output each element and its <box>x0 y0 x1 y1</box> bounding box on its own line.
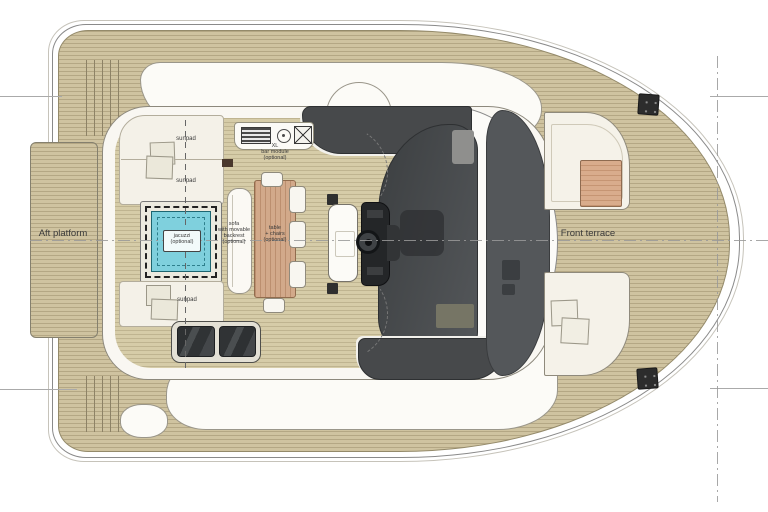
table-label: table + chairs (optional) <box>255 225 295 243</box>
front-terrace-label: Front terrace <box>553 228 623 240</box>
deck-hatch-bump-bottom <box>120 404 168 438</box>
sink-drain-dot <box>282 134 285 137</box>
stern-step-line <box>110 376 111 432</box>
windshield-detail <box>502 260 520 280</box>
aft-platform-label: Aft platform <box>37 228 89 240</box>
terrace-side-table <box>560 317 589 344</box>
cleat-icon <box>636 367 658 389</box>
chair <box>289 261 306 288</box>
cleat-icon <box>637 93 659 115</box>
skylight-glass <box>219 326 256 357</box>
station-line <box>0 96 62 97</box>
windshield-detail <box>502 284 515 295</box>
station-line <box>710 96 768 97</box>
steering-wheel-icon <box>356 230 380 254</box>
helm-bench-split <box>335 231 355 257</box>
stern-step-line <box>102 60 103 136</box>
bow-station-dashline <box>717 56 718 502</box>
console-detail <box>367 210 383 218</box>
sink-icon <box>277 129 291 143</box>
yacht-deck-plan: Aft platform Front terrace sunpad sunpad… <box>0 0 768 512</box>
centerline <box>30 240 768 241</box>
console-detail <box>367 267 383 275</box>
stern-step-line <box>118 376 119 432</box>
station-line <box>710 388 768 389</box>
sofa-label: sofa with movable backrest (optional) <box>217 221 251 246</box>
saloon-furniture-through-glass <box>400 210 444 256</box>
bar-module-label: XL bar module (optional) <box>244 143 306 161</box>
stern-step-line <box>94 60 95 136</box>
stern-step-line <box>94 376 95 432</box>
hardtop-glass-bottom-arm <box>358 338 506 380</box>
saloon-table-through-glass <box>436 304 474 328</box>
skylight-glass <box>177 326 215 357</box>
deck-fitting <box>222 159 233 167</box>
terrace-table <box>580 160 622 207</box>
chair <box>261 172 283 187</box>
stern-step-line <box>102 376 103 432</box>
grille-icon <box>241 127 271 144</box>
stern-step-line <box>86 60 87 136</box>
sunpad-label: sunpad <box>164 297 210 304</box>
sunpad-label: sunpad <box>163 136 209 143</box>
chair <box>263 298 285 313</box>
stern-step-line <box>86 376 87 432</box>
sunpad-label: sunpad <box>163 178 209 185</box>
helm-console-wing <box>387 225 400 261</box>
sunpad-side-table <box>146 156 174 180</box>
jacuzzi-label: jacuzzi (optional) <box>163 230 201 252</box>
station-line <box>0 389 77 390</box>
saloon-seat-through-glass <box>452 130 474 164</box>
